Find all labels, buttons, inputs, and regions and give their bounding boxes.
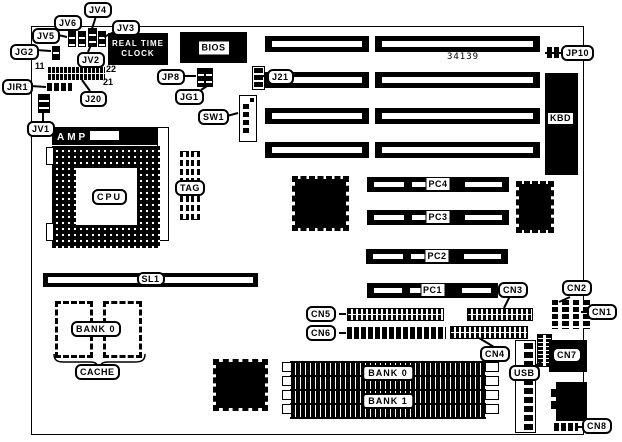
label-jv4: JV4 bbox=[84, 2, 112, 18]
label-cn8: CN8 bbox=[582, 418, 612, 434]
motherboard-diagram-page: { "board": { "part_number": "34139" }, "… bbox=[0, 0, 622, 442]
label-cn1: CN1 bbox=[587, 304, 617, 320]
label-jg1: JG1 bbox=[175, 89, 204, 105]
label-j20: J20 bbox=[80, 91, 107, 107]
j20-pin-11: 11 bbox=[35, 61, 45, 71]
label-jv2: JV2 bbox=[77, 52, 105, 68]
label-usb: USB bbox=[509, 365, 540, 381]
label-jp10: JP10 bbox=[561, 45, 594, 61]
label-cpu: CPU bbox=[92, 189, 127, 205]
label-jg2: JG2 bbox=[10, 44, 39, 60]
label-cache-bank0: BANK 0 bbox=[71, 321, 121, 337]
label-cn2: CN2 bbox=[562, 280, 592, 296]
label-sw1: SW1 bbox=[198, 109, 229, 125]
label-jp8: JP8 bbox=[157, 69, 185, 85]
label-tag: TAG bbox=[175, 180, 205, 196]
label-j21: J21 bbox=[267, 69, 294, 85]
label-cn3: CN3 bbox=[498, 282, 528, 298]
label-cn6: CN6 bbox=[306, 325, 336, 341]
label-jv5: JV5 bbox=[32, 28, 60, 44]
board-part-number: 34139 bbox=[438, 52, 488, 62]
label-cn5: CN5 bbox=[306, 306, 336, 322]
label-cn4: CN4 bbox=[480, 346, 510, 362]
label-jv1: JV1 bbox=[27, 121, 55, 137]
j20-pin-21: 21 bbox=[103, 77, 113, 87]
label-jv6: JV6 bbox=[54, 15, 82, 31]
label-cache: CACHE bbox=[75, 364, 120, 380]
label-jir1: JIR1 bbox=[2, 79, 33, 95]
label-jv3: JV3 bbox=[112, 20, 140, 36]
j20-pin-22: 22 bbox=[106, 64, 116, 74]
